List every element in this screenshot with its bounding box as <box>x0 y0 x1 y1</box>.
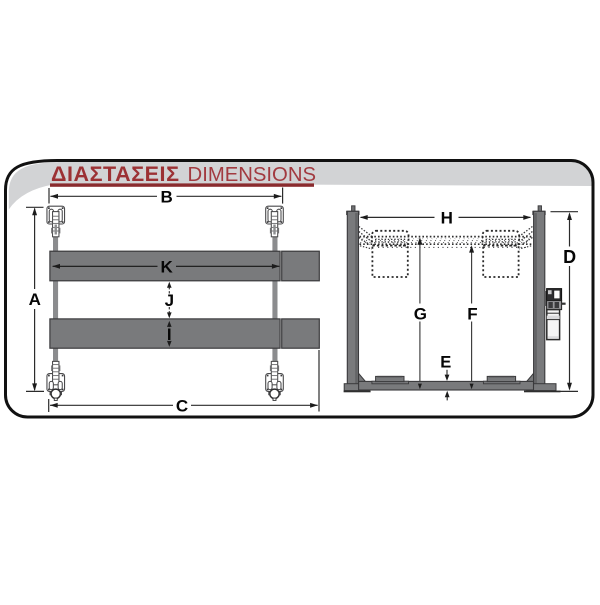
svg-text:B: B <box>160 187 172 206</box>
svg-text:I: I <box>167 325 172 344</box>
svg-text:H: H <box>441 209 453 228</box>
svg-text:J: J <box>165 291 174 310</box>
svg-text:G: G <box>414 304 427 323</box>
svg-text:D: D <box>563 247 576 267</box>
svg-text:A: A <box>29 290 41 309</box>
svg-text:C: C <box>176 396 188 415</box>
svg-text:K: K <box>160 257 173 276</box>
svg-text:E: E <box>440 354 451 372</box>
svg-text:F: F <box>467 304 477 323</box>
